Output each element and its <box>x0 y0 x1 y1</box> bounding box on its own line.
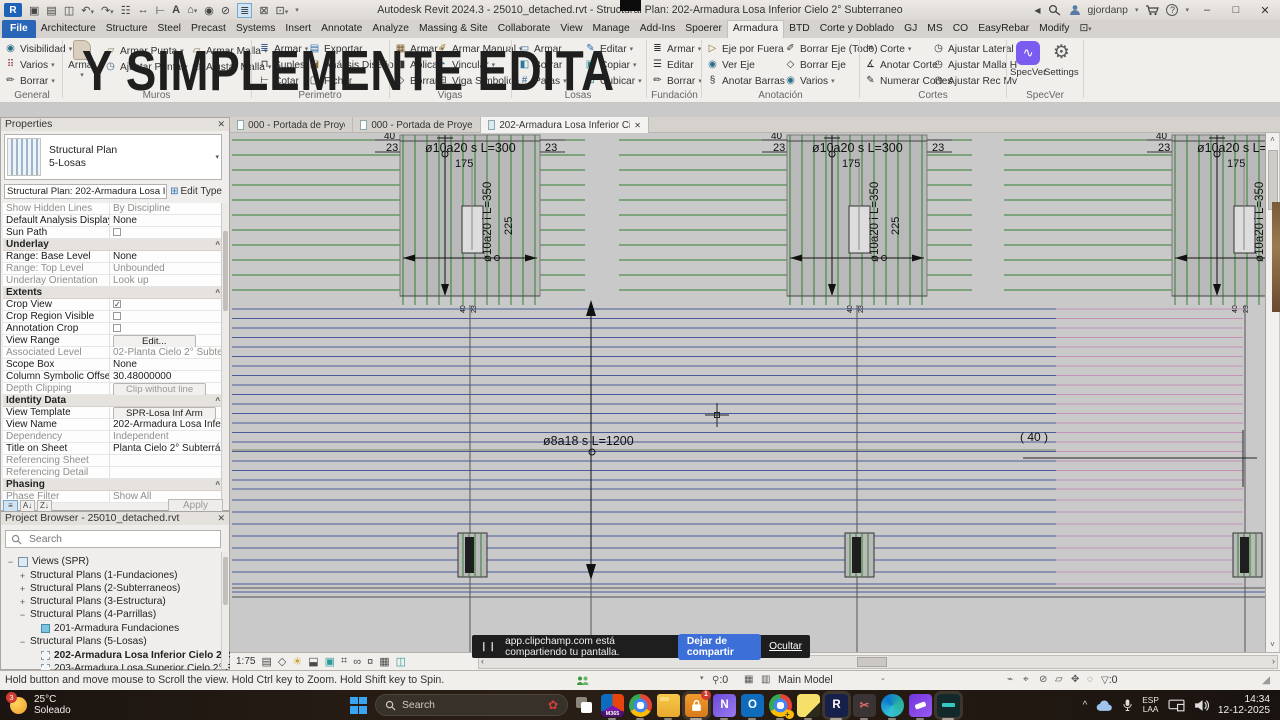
outlook-icon[interactable]: O <box>741 694 764 717</box>
hide-link[interactable]: Ocultar <box>769 641 802 652</box>
depth-clipping-button: Clip without line <box>113 383 206 395</box>
language-indicator[interactable]: ESPLAA <box>1142 696 1159 714</box>
view-icon <box>41 651 50 660</box>
ajustar-malla-h-button[interactable]: ◷Ajustar Malla H <box>932 58 1017 72</box>
type-sub: 5-Losas <box>49 158 86 169</box>
scrollbar-thumb[interactable] <box>857 657 887 667</box>
notification-badge: 3 <box>6 692 17 703</box>
tab-annotate[interactable]: Annotate <box>316 20 367 38</box>
panel-label-fundacion: Fundación <box>648 90 701 101</box>
measure-icon[interactable]: ↔ <box>138 4 149 16</box>
m365-app-icon[interactable]: M365 <box>601 694 624 717</box>
file-explorer-icon[interactable] <box>657 694 680 717</box>
redo-icon[interactable]: ↷▾ <box>101 4 114 17</box>
revit-app-icon[interactable]: R <box>825 694 848 717</box>
properties-header: Properties ✕ <box>1 118 229 131</box>
scroll-up-icon[interactable]: ˄ <box>1266 133 1279 147</box>
property-row: View TemplateSPR-Losa Inf Arm <box>3 407 223 419</box>
tab-file[interactable]: File <box>2 20 36 38</box>
design-options-icon[interactable]: ▥ <box>761 674 770 685</box>
sun-icon: 3 <box>10 697 27 714</box>
gear-icon: ⚙ <box>1053 41 1070 65</box>
selector-row: Structural Plan: 202-Armadura Losa Infer… <box>4 183 222 199</box>
eraser-icon: ✏ <box>4 75 17 87</box>
tree-item-201[interactable]: 201-Armadura Fundaciones <box>41 622 179 635</box>
tree-item-plans-4[interactable]: −Structural Plans (4-Parrillas) <box>19 608 156 621</box>
tab-spoerer[interactable]: Spoerer <box>680 20 727 38</box>
close-icon[interactable]: ✕ <box>217 119 225 130</box>
file-tab-icon[interactable]: ▣ <box>29 4 39 17</box>
properties-scrollbar[interactable] <box>221 203 228 503</box>
windows-taskbar: 3 25°CSoleado Search ✿ M365 1 N O + R ✂ <box>0 690 1280 720</box>
clipchamp-icon[interactable] <box>909 694 932 717</box>
varios-icon: ⠿ <box>4 59 17 71</box>
anotar-barras-button[interactable]: §Anotar Barras <box>706 74 785 88</box>
property-row: Scope BoxNone <box>3 359 223 371</box>
help-icon[interactable]: ? <box>1166 4 1178 16</box>
signed-in-user[interactable]: gjordanp <box>1088 5 1128 16</box>
property-row: Title on SheetPlanta Cielo 2° Subterráne… <box>3 443 223 455</box>
property-value: Look up <box>109 275 223 287</box>
chevron-down-icon[interactable]: ▾ <box>215 153 219 161</box>
view-tab-bar: 000 - Portada de Proyecto 000 - Portada … <box>230 117 1280 133</box>
user-menu-chevron[interactable]: ▾ <box>1135 6 1139 14</box>
share-message: app.clipchamp.com está compartiendo tu p… <box>505 636 670 658</box>
purple-n-app-icon[interactable]: N <box>713 694 736 717</box>
search-icon[interactable] <box>1048 4 1062 16</box>
rebar-bottom-tag: ø8a18 s L=1200 <box>543 434 634 448</box>
tab-architecture[interactable]: Architecture <box>36 20 101 38</box>
text-icon[interactable]: A <box>172 4 180 16</box>
reveal-hidden-icon[interactable]: ¤ <box>367 656 373 668</box>
property-row: Associated Level02-Planta Cielo 2° Subte… <box>3 347 223 359</box>
sort-ascending-button[interactable]: A↓ <box>20 500 35 512</box>
axis-icon: ▷ <box>706 43 719 55</box>
weather-widget[interactable]: 3 25°CSoleado <box>0 694 200 716</box>
tab-collaborate[interactable]: Collaborate <box>493 20 556 38</box>
ribbon-tab-bar: File Architecture Structure Steel Precas… <box>0 20 1280 38</box>
stop-sharing-button[interactable]: Dejar de compartir <box>678 634 761 660</box>
tab-corte-y-doblado[interactable]: Corte y Doblado <box>815 20 899 38</box>
plan-icon <box>488 120 495 130</box>
onedrive-icon[interactable] <box>1096 699 1113 712</box>
property-row: Default Analysis Display St...None <box>3 215 223 227</box>
detail-level-icon[interactable]: ▤ <box>261 655 271 668</box>
speaker-icon[interactable] <box>1194 699 1209 712</box>
select-by-face-icon[interactable]: ▱ <box>1055 674 1063 685</box>
project-browser-palette: Project Browser - 25010_detached.rvt ✕ −… <box>0 511 230 670</box>
property-value[interactable]: 30.48000000 <box>109 371 223 383</box>
active-design-option[interactable]: Main Model <box>778 674 833 686</box>
annotation-crop-checkbox[interactable] <box>113 324 121 332</box>
tree-item-plans-5[interactable]: −Structural Plans (5-Losas) <box>19 635 147 648</box>
editar-fundacion-button[interactable]: ☰Editar <box>651 58 694 72</box>
view-range-edit-button[interactable]: Edit... <box>113 335 196 347</box>
eye-icon: ◉ <box>4 43 17 55</box>
panel-label-cortes: Cortes <box>861 90 1005 101</box>
eje-por-fuera-button[interactable]: ▷Eje por Fuera <box>706 42 784 56</box>
drag-elements-icon[interactable]: ✥ <box>1071 674 1079 685</box>
borrar-eje-button[interactable]: ◇Borrar Eje <box>784 58 846 72</box>
tab-view[interactable]: View <box>555 20 587 38</box>
seasonal-flower-icon: ✿ <box>548 699 558 711</box>
scroll-right-icon[interactable]: › <box>1272 656 1275 666</box>
search-input[interactable] <box>27 533 215 546</box>
thin-lines-icon[interactable]: ≣ <box>237 3 252 18</box>
aligned-dimension-icon[interactable]: ⊢ <box>156 4 166 17</box>
editable-worksets[interactable]: ⚲:0 <box>712 674 728 686</box>
tab-easyrebar[interactable]: EasyRebar <box>973 20 1034 38</box>
tab-steel[interactable]: Steel <box>152 20 185 38</box>
select-links-icon[interactable]: ⌁ <box>1007 674 1013 685</box>
save-icon[interactable]: ◫ <box>64 4 74 17</box>
filter-icon[interactable]: ▽:0 <box>1101 674 1118 686</box>
edit-type-button[interactable]: ⊞Edit Type <box>170 186 222 197</box>
select-pinned-icon[interactable]: ⊘ <box>1039 674 1047 685</box>
tree-item-plans-3[interactable]: +Structural Plans (3-Estructura) <box>19 595 166 608</box>
panel-label-general: General <box>2 90 62 101</box>
properties-palette: Properties ✕ Structural Plan 5-Losas ▾ S… <box>0 117 230 511</box>
recording-app-icon[interactable] <box>937 694 960 717</box>
tree-item-plans-1[interactable]: +Structural Plans (1-Fundaciones) <box>19 569 178 582</box>
eye-icon: ◉ <box>706 59 719 71</box>
visual-style-icon[interactable]: ◇ <box>278 655 286 668</box>
clock[interactable]: 14:3412-12-2025 <box>1218 694 1270 716</box>
revit-application-window: R ▣ ▤ ◫ ↶▾ ↷▾ ☷ ↔ ⊢ A ⌂▾ ◉ ⊘ ≣ ⊠ ⊡▾ ▾ Au… <box>0 0 1280 720</box>
varios-button[interactable]: ⠿Varios▾ <box>4 58 55 72</box>
annotate-cut-icon: ∡ <box>864 59 877 71</box>
design-option-chevron-icon[interactable]: ⌄ <box>880 674 886 682</box>
property-row: View RangeEdit... <box>3 335 223 347</box>
maximize-button[interactable]: □ <box>1225 4 1247 16</box>
crop-view-icon[interactable]: ▣ <box>325 655 335 668</box>
property-value[interactable]: Planta Cielo 2° Subterráneo <box>109 443 223 455</box>
tab-precast[interactable]: Precast <box>186 20 231 38</box>
type-name: Structural Plan <box>49 145 117 156</box>
temporary-hide-icon[interactable]: ∞ <box>353 656 361 668</box>
property-value: 02-Planta Cielo 2° Subterra... <box>109 347 223 359</box>
property-value <box>109 467 223 479</box>
tab-btd[interactable]: BTD <box>784 20 815 38</box>
property-value[interactable]: By Discipline <box>109 203 223 215</box>
property-value[interactable]: None <box>109 359 223 371</box>
property-row: Column Symbolic Offset30.48000000 <box>3 371 223 383</box>
selection-ring-icon: ◌ <box>1087 674 1093 685</box>
tree-item-plans-2[interactable]: +Structural Plans (2-Subterraneos) <box>19 582 180 595</box>
close-hidden-windows-icon[interactable]: ⊠ <box>259 4 268 17</box>
property-row: Depth ClippingClip without line <box>3 383 223 395</box>
ajustar-rec-mv-button[interactable]: ◷Ajustar Rec Mv <box>932 74 1017 88</box>
tab-massing-site[interactable]: Massing & Site <box>414 20 493 38</box>
weather-condition: Soleado <box>34 705 71 716</box>
property-row: DependencyIndependent <box>3 431 223 443</box>
hidden-icons-chevron[interactable]: ^ <box>1083 700 1088 711</box>
snipping-tool-icon[interactable]: ✂ <box>853 694 876 717</box>
property-value <box>109 455 223 467</box>
search-icon <box>385 700 396 711</box>
tree-item-views[interactable]: −Views (SPR) <box>7 555 89 568</box>
ver-eje-button[interactable]: ◉Ver Eje <box>706 58 755 72</box>
dim-40-parenthesis-label: ( 40 ) <box>1020 430 1048 444</box>
tab-ms[interactable]: MS <box>922 20 947 38</box>
anotar-corte-button[interactable]: ∡Anotar Corte <box>864 58 938 72</box>
crop-view-checkbox[interactable] <box>113 300 121 308</box>
lock-app-icon[interactable]: 1 <box>685 694 708 717</box>
video-caption-overlay: Y SIMPLEMENTE EDITA <box>82 38 615 104</box>
property-value: Unbounded <box>109 263 223 275</box>
close-view-icon[interactable]: ✕ <box>634 121 641 130</box>
tab-systems[interactable]: Systems <box>231 20 280 38</box>
property-group-header[interactable]: Extents^ <box>3 287 223 299</box>
help-menu-chevron[interactable]: ▾ <box>1185 6 1189 14</box>
number-icon: ✎ <box>864 75 877 87</box>
project-browser-header: Project Browser - 25010_detached.rvt ✕ <box>1 512 229 525</box>
view-tab-portada-1[interactable]: 000 - Portada de Proyecto <box>230 117 353 133</box>
pause-icon: ❙❙ <box>480 641 497 652</box>
view-tab-202-active[interactable]: 202-Armadura Losa Inferior Ciel...✕ <box>481 117 649 133</box>
property-value[interactable]: None <box>109 215 223 227</box>
tab-armadura[interactable]: Armadura <box>727 20 784 38</box>
ajustar-lateral-button[interactable]: ◷Ajustar Lateral <box>932 42 1014 56</box>
weather-temp: 25°C <box>34 694 56 705</box>
view-icon <box>41 624 50 633</box>
canvas-background <box>230 133 1265 652</box>
specver-button[interactable]: ∿SpecVer <box>1010 41 1046 78</box>
status-bar: Hold button and move mouse to Scroll the… <box>0 670 1280 690</box>
tab-co[interactable]: CO <box>948 20 973 38</box>
edit-icon: ☰ <box>651 59 664 71</box>
open-icon[interactable]: ▤ <box>46 4 56 17</box>
cast-screen-icon[interactable] <box>1168 699 1185 712</box>
erase-all-icon: ✐ <box>784 43 797 55</box>
tab-analyze[interactable]: Analyze <box>367 20 414 38</box>
adjust-icon: ◷ <box>932 75 945 87</box>
notification-badge: 1 <box>701 690 711 700</box>
quick-access-toolbar: R ▣ ▤ ◫ ↶▾ ↷▾ ☷ ↔ ⊢ A ⌂▾ ◉ ⊘ ≣ ⊠ ⊡▾ ▾ <box>4 3 299 18</box>
undo-icon[interactable]: ↶▾ <box>81 4 94 17</box>
sheet-icon <box>237 120 244 130</box>
property-row: View Name202-Armadura Losa Inferio... <box>3 419 223 431</box>
status-hint: Hold button and move mouse to Scroll the… <box>5 674 444 686</box>
search-icon <box>11 534 22 545</box>
property-value: Independent <box>109 431 223 443</box>
erase-icon: ◇ <box>784 59 797 71</box>
close-button[interactable]: ✕ <box>1254 4 1276 17</box>
property-row: Underlay OrientationLook up <box>3 275 223 287</box>
workset-panel-icon[interactable]: ▦ <box>744 674 753 685</box>
property-row: Crop View <box>3 299 223 311</box>
property-value[interactable]: 202-Armadura Losa Inferio... <box>109 419 223 431</box>
section-icon[interactable]: ⊘ <box>221 4 230 17</box>
resize-grip[interactable]: ◢ <box>1262 674 1270 686</box>
taskbar-center: Search ✿ M365 1 N O + R ✂ <box>350 694 960 717</box>
panel-label-anotacion: Anotación <box>703 90 858 101</box>
borrar-fundacion-button[interactable]: ✏Borrar▾ <box>651 74 702 88</box>
screen-share-notification: ❙❙ app.clipchamp.com está compartiendo t… <box>472 635 810 658</box>
adjust-icon: ◷ <box>932 59 945 71</box>
property-row: Sun Path <box>3 227 223 239</box>
property-row: Referencing Detail <box>3 467 223 479</box>
adjust-icon: ◷ <box>932 43 945 55</box>
browser-scrollbar[interactable] <box>221 552 228 669</box>
system-tray: ^ ESPLAA 14:3412-12-2025 <box>1083 694 1280 716</box>
tab-insert[interactable]: Insert <box>280 20 316 38</box>
bar-tag-icon: § <box>706 75 719 87</box>
tab-add-ins[interactable]: Add-Ins <box>635 20 681 38</box>
minimize-button[interactable]: – <box>1196 4 1218 16</box>
type-thumbnail <box>7 138 41 176</box>
home-view-icon[interactable]: ⌂▾ <box>187 4 197 16</box>
view-control-bar: 1:75 ▤ ◇ ☀ ⬓ ▣ ⌗ ∞ ¤ ▦ ◫ <box>230 655 478 668</box>
settings-button[interactable]: ⚙Settings <box>1044 41 1079 78</box>
project-browser-title: Project Browser - 25010_detached.rvt <box>5 513 179 524</box>
varios-anotacion-button[interactable]: ◉Varios▾ <box>784 74 835 88</box>
taskbar-search[interactable]: Search ✿ <box>375 694 568 716</box>
workset-chevron-icon[interactable]: ▾ <box>700 674 704 682</box>
close-icon[interactable]: ✕ <box>217 513 225 524</box>
tab-gj[interactable]: GJ <box>899 20 922 38</box>
property-group-header[interactable]: Phasing^ <box>3 479 223 491</box>
customize-qat-icon[interactable]: ▾ <box>295 6 299 14</box>
task-view-icon[interactable] <box>573 694 596 717</box>
worksharing-display-icon[interactable]: ◫ <box>396 655 406 668</box>
titlebar-right: ◀ gjordanp ▾ ? ▾ – □ ✕ <box>1034 4 1276 17</box>
ribbon-display-toggle-icon[interactable]: ⊡▾ <box>1074 20 1096 38</box>
start-button[interactable] <box>350 697 367 714</box>
property-group-header[interactable]: Underlay^ <box>3 239 223 251</box>
revit-logo[interactable]: R <box>4 3 22 17</box>
sort-default-button[interactable]: ≡ <box>3 500 18 512</box>
properties-title: Properties <box>5 119 52 130</box>
element-selector[interactable]: Structural Plan: 202-Armadura Losa Infer… <box>4 184 167 199</box>
specver-icon: ∿ <box>1016 41 1040 65</box>
tab-manage[interactable]: Manage <box>588 20 635 38</box>
corte-button[interactable]: ⌗Corte▾ <box>864 42 911 56</box>
scroll-down-icon[interactable]: ˅ <box>1266 638 1279 652</box>
tab-structure[interactable]: Structure <box>101 20 153 38</box>
render-icon[interactable]: ◉ <box>204 4 214 17</box>
property-row: Show Hidden LinesBy Discipline <box>3 203 223 215</box>
collaborate-icon <box>576 675 589 687</box>
app-store-icon[interactable] <box>1145 4 1159 16</box>
browser-search[interactable] <box>5 530 221 548</box>
switch-windows-icon[interactable]: ⊡▾ <box>276 4 289 17</box>
property-value[interactable]: None <box>109 251 223 263</box>
microphone-icon[interactable] <box>1122 698 1133 712</box>
property-row: Referencing Sheet <box>3 455 223 467</box>
borrar-button[interactable]: ✏Borrar▾ <box>4 74 55 88</box>
edge-icon[interactable] <box>881 694 904 717</box>
shadows-icon[interactable]: ⬓ <box>308 655 318 668</box>
section-cut-icon: ⌗ <box>864 43 877 55</box>
user-icon[interactable] <box>1069 4 1081 16</box>
eye-icon: ◉ <box>784 75 797 87</box>
property-row: Range: Base LevelNone <box>3 251 223 263</box>
panel-label-specver: SpecVer <box>1007 90 1083 101</box>
views-icon <box>18 557 28 567</box>
sun-path-checkbox[interactable] <box>113 228 121 236</box>
search-placeholder: Search <box>402 700 435 711</box>
select-underlay-icon[interactable]: ⌖ <box>1023 674 1029 685</box>
property-row: Annotation Crop <box>3 323 223 335</box>
sticky-notes-icon[interactable] <box>797 694 820 717</box>
temporary-view-icon[interactable]: ▦ <box>379 655 389 668</box>
scrollbar-thumb[interactable] <box>1268 150 1278 210</box>
webcam-overlay-sliver <box>1272 202 1280 312</box>
print-icon[interactable]: ☷ <box>121 4 131 17</box>
type-selector[interactable]: Structural Plan 5-Losas ▾ <box>4 134 222 180</box>
drawing-area: 000 - Portada de Proyecto 000 - Portada … <box>230 117 1280 670</box>
frame-collapse-icon[interactable]: ◀ <box>1034 6 1040 15</box>
armar-fundacion-button[interactable]: ≣Armar▾ <box>651 42 701 56</box>
eraser-icon: ✏ <box>651 75 664 87</box>
view-tab-portada-2[interactable]: 000 - Portada de Proyecto <box>353 117 481 133</box>
sort-descending-button[interactable]: Z↓ <box>37 500 52 512</box>
sun-path-icon[interactable]: ☀ <box>292 655 302 668</box>
crop-region-visible-checkbox[interactable] <box>113 312 121 320</box>
tab-modify[interactable]: Modify <box>1034 20 1074 38</box>
drawing-canvas[interactable]: 40 23 23 ø10a20 s L=300 175 ø10a20 i L=3… <box>230 133 1265 652</box>
scale-button[interactable]: 1:75 <box>236 656 255 667</box>
sheet-icon <box>360 120 367 130</box>
property-group-header[interactable]: Identity Data^ <box>3 395 223 407</box>
property-row: Crop Region Visible <box>3 311 223 323</box>
chrome-icon[interactable] <box>629 694 652 717</box>
rebar-grid-icon: ≣ <box>651 43 664 55</box>
property-row: Range: Top LevelUnbounded <box>3 263 223 275</box>
show-crop-icon[interactable]: ⌗ <box>341 655 347 668</box>
view-template-button[interactable]: SPR-Losa Inf Arm <box>113 407 216 419</box>
redaction-box <box>620 0 641 11</box>
chrome-profile-icon[interactable]: + <box>769 694 792 717</box>
